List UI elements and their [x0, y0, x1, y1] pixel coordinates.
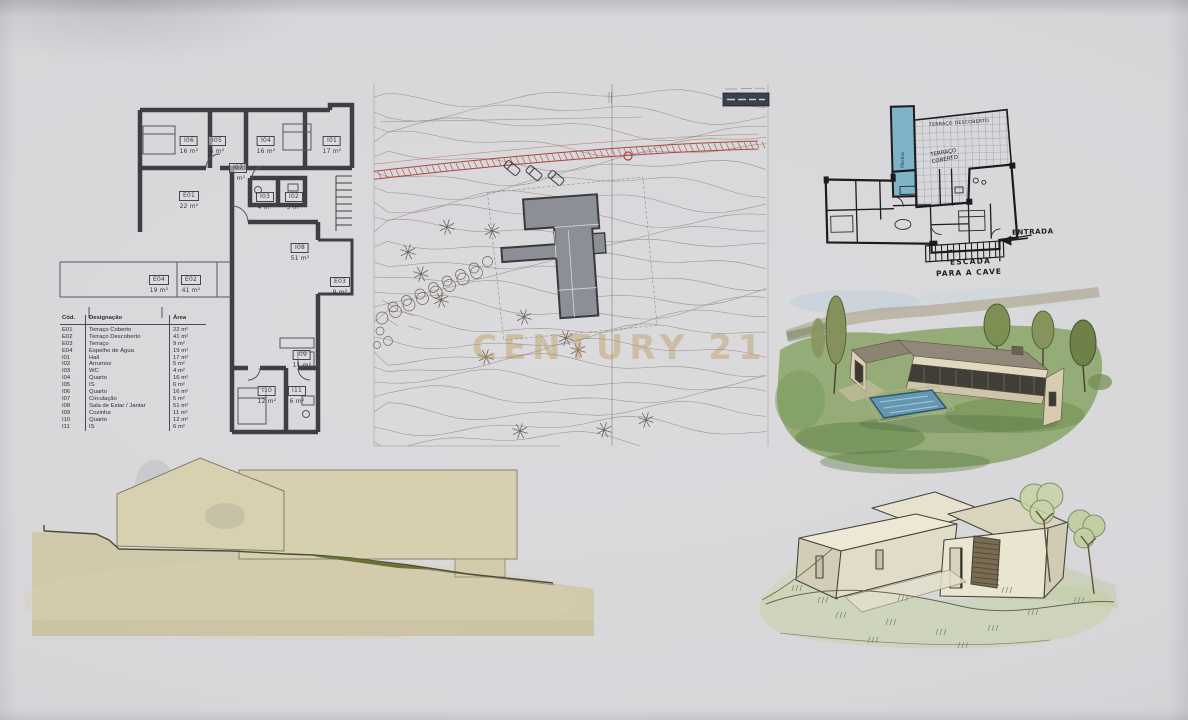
legend-row: I10Quarto12 m² [60, 417, 206, 424]
legend-cell-code: I05 [60, 382, 85, 389]
legend-cell-code: E01 [60, 327, 85, 334]
legend-row: I08Sala de Estar / Jantar51 m² [60, 403, 206, 410]
legend-cell-name: Terraço Coberto [85, 327, 169, 334]
room-label-I02: I025 m² [285, 183, 303, 211]
room-label-I10: I1012 m² [258, 377, 277, 405]
poplar-tree [826, 296, 846, 364]
room-area: 51 m² [291, 255, 310, 262]
room-code: I06 [180, 136, 198, 146]
legend-row: I04Quarto16 m² [60, 375, 206, 382]
legend-cell-code: I09 [60, 410, 85, 417]
room-area: 16 m² [257, 148, 276, 155]
room-label-I05: I056 m² [208, 127, 226, 155]
legend-cell-code: I11 [60, 424, 85, 431]
legend-cell-name: Terraço Descoberto [85, 334, 169, 341]
room-area: 5 m² [285, 204, 303, 211]
legend-cell-code: I03 [60, 368, 85, 375]
room-label-I09: I0911 m² [293, 341, 312, 369]
room-code: I02 [285, 192, 303, 202]
legend-cell-code: I04 [60, 375, 85, 382]
scale-badge [723, 88, 769, 106]
room-code: I03 [256, 192, 274, 202]
legend-cell-name: Espelho de Água [85, 348, 169, 355]
legend-row: E03Terraço9 m² [60, 341, 206, 348]
legend-divider [85, 315, 86, 431]
legend-cell-name: Quarto [85, 375, 169, 382]
legend-header-code: Cód. [60, 315, 85, 322]
legend-cell-name: Arrumos [85, 361, 169, 368]
legend-cell-name: Circulação [85, 396, 169, 403]
legend-row: I02Arrumos5 m² [60, 361, 206, 368]
legend-row: I11IS6 m² [60, 424, 206, 431]
watercolor-render [770, 283, 1115, 478]
room-label-E01: E0122 m² [179, 182, 199, 210]
room-area: 12 m² [258, 398, 277, 405]
century21-watermark: CENTURY 21 [472, 328, 768, 368]
legend-cell-name: Sala de Estar / Jantar [85, 403, 169, 410]
room-area: 19 m² [149, 287, 169, 294]
section-line [609, 84, 612, 446]
room-label-I06: I0616 m² [180, 127, 199, 155]
room-area: 6 m² [208, 148, 226, 155]
room-area: 16 m² [180, 148, 199, 155]
legend-cell-area: 41 m² [169, 334, 202, 341]
legend-cell-name: Terraço [85, 341, 169, 348]
room-label-I04: I0416 m² [257, 127, 276, 155]
legend-cell-name: WC [85, 368, 169, 375]
room-label-E04: E0419 m² [149, 266, 169, 294]
room-area: 11 m² [293, 362, 312, 369]
room-area: 9 m² [330, 289, 350, 296]
legend-separator [60, 324, 206, 325]
room-code: E04 [149, 275, 169, 285]
legend-cell-name: Quarto [85, 417, 169, 424]
pencil-sketch-render [750, 463, 1125, 658]
legend-row: I07Circulação5 m² [60, 396, 206, 403]
site-plan-drawing [370, 78, 772, 450]
legend-divider [169, 315, 170, 431]
legend-cell-code: E04 [60, 348, 85, 355]
room-code: I07 [229, 163, 247, 173]
legend-cell-code: E03 [60, 341, 85, 348]
legend-cell-code: I01 [60, 355, 85, 362]
legend-row: I09Cozinha11 m² [60, 410, 206, 417]
room-code: I04 [257, 136, 275, 146]
legend-cell-code: I06 [60, 389, 85, 396]
room-code: I11 [288, 386, 306, 396]
room-label-I11: I116 m² [288, 377, 306, 405]
legend-row: E04Espelho de Água19 m² [60, 348, 206, 355]
room-code: E01 [179, 191, 199, 201]
room-label-E02: E0241 m² [181, 266, 201, 294]
legend-cell-name: Hall [85, 355, 169, 362]
legend-cell-area: 4 m² [169, 368, 202, 375]
room-code: E03 [330, 277, 350, 287]
legend-cell-code: I08 [60, 403, 85, 410]
legend-cell-area: 6 m² [169, 382, 202, 389]
chimney [1012, 346, 1023, 355]
room-label-I03: I034 m² [256, 183, 274, 211]
legend-cell-code: I02 [60, 361, 85, 368]
legend-row: I03WC4 m² [60, 368, 206, 375]
elevation-drawing [25, 448, 600, 643]
water-mirror-outline [60, 262, 232, 318]
legend-cell-area: 5 m² [169, 361, 202, 368]
legend-cell-name: Quarto [85, 389, 169, 396]
legend-cell-code: I10 [60, 417, 85, 424]
legend-row: E02Terraço Descoberto41 m² [60, 334, 206, 341]
legend-cell-name: Cozinha [85, 410, 169, 417]
bed-i06 [143, 126, 175, 154]
room-code: I05 [208, 136, 226, 146]
legend-row: I05IS6 m² [60, 382, 206, 389]
room-area: 22 m² [179, 203, 199, 210]
room-code: I09 [293, 350, 311, 360]
legend-cell-area: 17 m² [169, 355, 202, 362]
legend-header: Cód. Designação Área [60, 315, 206, 324]
legend-row: I01Hall17 m² [60, 355, 206, 362]
stairs-label-line1: ESCADA [950, 256, 991, 266]
legend-cell-area: 5 m² [169, 396, 202, 403]
legend-cell-area: 11 m² [169, 410, 202, 417]
room-label-E03: E039 m² [330, 268, 350, 296]
legend-header-name: Designação [85, 315, 169, 322]
legend-cell-name: IS [85, 382, 169, 389]
legend-rows: E01Terraço Coberto22 m²E02Terraço Descob… [60, 327, 206, 431]
legend-cell-area: 22 m² [169, 327, 202, 334]
floor-plan-stairs [336, 176, 352, 231]
legend-cell-area: 16 m² [169, 389, 202, 396]
room-area: 17 m² [323, 148, 342, 155]
room-label-I01: I0117 m² [323, 127, 342, 155]
house-footprint [487, 177, 657, 341]
room-area: 41 m² [181, 287, 201, 294]
legend-cell-area: 16 m² [169, 375, 202, 382]
room-area: 5 m² [229, 175, 247, 182]
legend-cell-area: 12 m² [169, 417, 202, 424]
legend-cell-code: I07 [60, 396, 85, 403]
entrance-label: ENTRADA [1012, 227, 1054, 236]
pool-label: Piscina [901, 152, 906, 168]
room-area: 6 m² [288, 398, 306, 405]
legend-cell-area: 6 m² [169, 424, 202, 431]
architectural-plan-sheet: CENTURY 21 Cód. Des [0, 0, 1188, 720]
room-label-I08: I0851 m² [291, 234, 310, 262]
legend-cell-area: 19 m² [169, 348, 202, 355]
room-code: I01 [323, 136, 341, 146]
room-label-I07: I075 m² [229, 154, 247, 182]
legend-cell-name: IS [85, 424, 169, 431]
legend-cell-code: E02 [60, 334, 85, 341]
room-code: E02 [181, 275, 201, 285]
legend-row: I06Quarto16 m² [60, 389, 206, 396]
legend-header-area: Área [169, 315, 202, 322]
legend-cell-area: 9 m² [169, 341, 202, 348]
hand-sketch-plan [815, 88, 1080, 288]
room-code: I10 [258, 386, 276, 396]
legend-row: E01Terraço Coberto22 m² [60, 327, 206, 334]
legend-cell-area: 51 m² [169, 403, 202, 410]
room-area: 4 m² [256, 204, 274, 211]
room-code: I08 [291, 243, 309, 253]
legend-table: Cód. Designação Área E01Terraço Coberto2… [60, 315, 206, 431]
